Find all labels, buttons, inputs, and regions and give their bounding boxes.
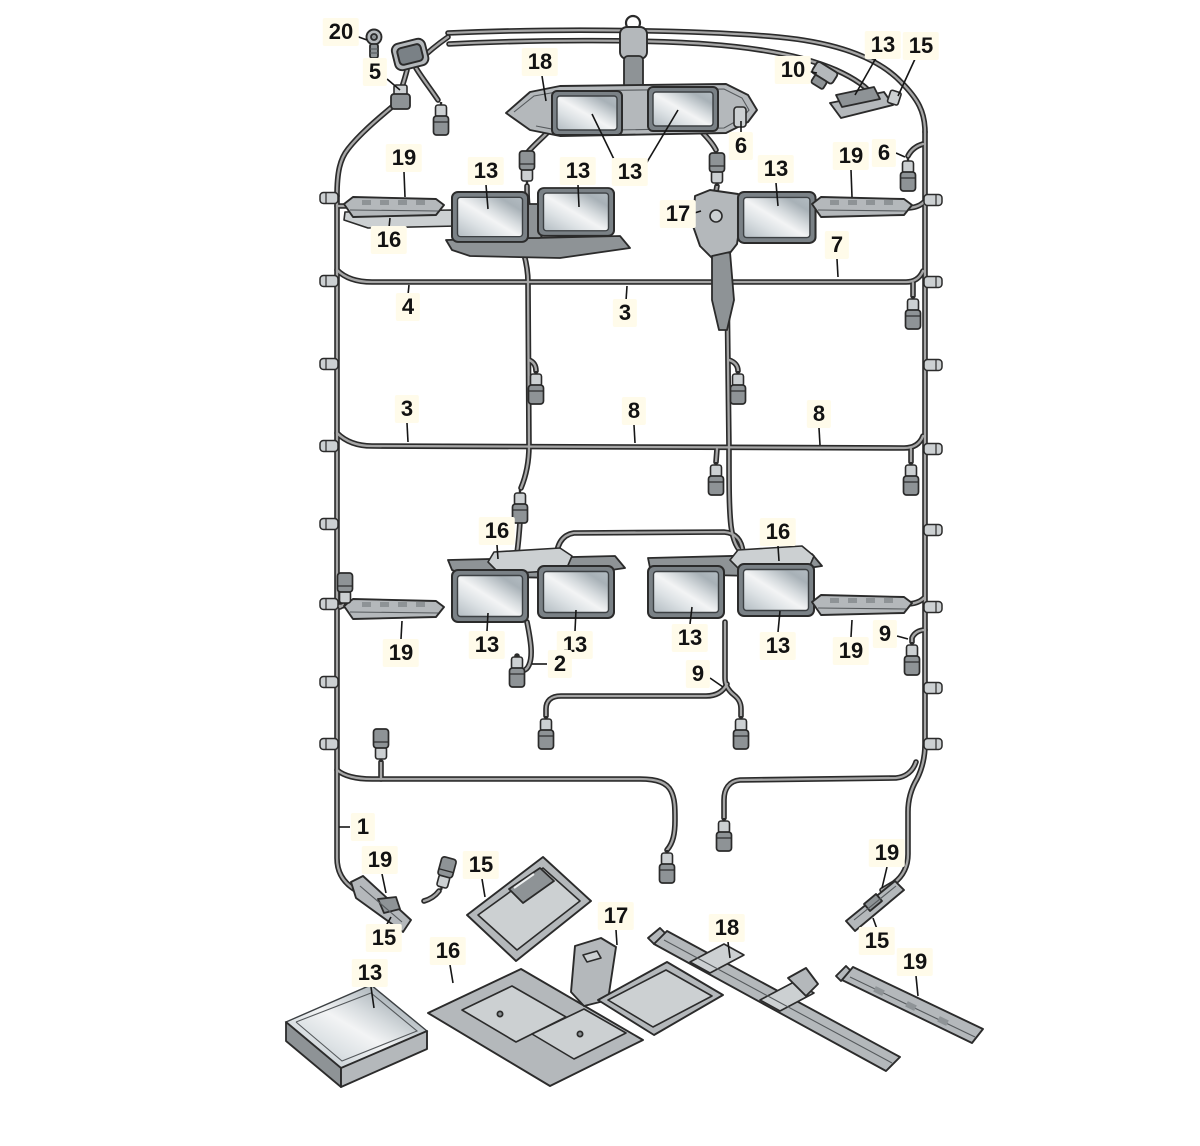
callout-16-22: 16 <box>479 517 515 545</box>
callout-13-28: 13 <box>672 624 708 652</box>
callout-13-29: 13 <box>760 632 796 660</box>
wire-cluster-drop-b <box>416 68 438 100</box>
callout-18-2: 18 <box>522 48 558 76</box>
wire-9-left-branch <box>546 684 727 716</box>
connector-6-right <box>901 158 916 191</box>
leader-line-13 <box>578 185 579 207</box>
callout-19-34: 19 <box>362 846 398 874</box>
callout-15-42: 15 <box>859 927 895 955</box>
callout-5-1: 5 <box>363 58 387 86</box>
leader-line-9 <box>897 636 908 639</box>
wire-run-d <box>724 762 916 818</box>
callout-13-9: 13 <box>560 157 596 185</box>
callout-13-4: 13 <box>865 31 901 59</box>
callout-16-15: 16 <box>371 226 407 254</box>
callout-19-7: 19 <box>386 144 422 172</box>
rail-19-upper-left <box>344 197 444 217</box>
leader-line-16 <box>450 965 453 983</box>
leader-line-9 <box>710 678 723 687</box>
callout-1-33: 1 <box>351 813 375 841</box>
part-19-rail <box>836 966 983 1043</box>
rail-19-lower-left <box>344 599 444 619</box>
callout-15-36: 15 <box>463 851 499 879</box>
leader-line-15 <box>482 879 485 897</box>
callout-19-24: 19 <box>383 639 419 667</box>
callout-13-8: 13 <box>468 157 504 185</box>
callout-19-41: 19 <box>869 839 905 867</box>
leader-line-19 <box>916 976 918 996</box>
callout-20-0: 20 <box>323 18 359 46</box>
leader-line-8 <box>634 425 635 443</box>
callout-15-35: 15 <box>366 924 402 952</box>
callout-8-21: 8 <box>807 400 831 428</box>
leader-line-19 <box>382 874 386 893</box>
callout-9-32: 9 <box>686 660 710 688</box>
callout-2-27: 2 <box>548 650 572 678</box>
callout-8-20: 8 <box>622 397 646 425</box>
diagram-canvas: 2051810131561913131317131961674338816161… <box>0 0 1200 1146</box>
callout-10-3: 10 <box>775 56 811 84</box>
module-13-lr-a <box>648 566 724 618</box>
leader-line-13 <box>575 610 576 631</box>
callout-17-11: 17 <box>660 200 696 228</box>
leader-line-16 <box>497 545 498 559</box>
callout-19-13: 19 <box>833 142 869 170</box>
callout-18-40: 18 <box>709 914 745 942</box>
module-13-ul-a <box>452 192 528 242</box>
callout-13-25: 13 <box>469 631 505 659</box>
connector-9-right <box>905 642 920 675</box>
leader-line-17 <box>616 930 617 945</box>
callout-6-6: 6 <box>729 132 753 160</box>
callout-7-16: 7 <box>825 231 849 259</box>
leader-line-19 <box>401 621 402 639</box>
leader-line-13 <box>487 613 488 631</box>
module-13-ll-a <box>452 570 528 622</box>
bolt-20 <box>367 30 382 59</box>
wire-run-a <box>337 270 923 282</box>
leader-line-16 <box>778 546 779 561</box>
assembly-upper-right <box>693 153 916 330</box>
rail-19-lower-right <box>812 595 912 615</box>
callout-13-12: 13 <box>758 155 794 183</box>
leader-line-3 <box>407 423 408 442</box>
wire-9-left-branch <box>546 684 727 716</box>
callout-4-17: 4 <box>396 293 420 321</box>
callout-19-43: 19 <box>897 948 933 976</box>
connector-10 <box>806 61 838 92</box>
callout-6-14: 6 <box>872 139 896 167</box>
callout-16-23: 16 <box>760 518 796 546</box>
module-13-lr-b <box>738 564 814 616</box>
leader-line-19 <box>851 620 852 637</box>
callout-3-18: 3 <box>613 299 637 327</box>
connector-wire-2 <box>510 654 525 687</box>
wire-run-c <box>337 770 675 850</box>
callout-15-5: 15 <box>903 32 939 60</box>
part-13-box <box>286 985 427 1087</box>
bracket-17 <box>693 190 742 258</box>
callout-19-30: 19 <box>833 637 869 665</box>
leader-line-7 <box>837 259 838 277</box>
connector-5-cluster <box>390 37 448 135</box>
leader-line-19 <box>851 170 852 197</box>
wire-run-d <box>724 762 916 818</box>
callout-9-31: 9 <box>873 620 897 648</box>
wire-runb-stub-mid <box>716 449 717 462</box>
harness-artwork <box>0 0 1200 1146</box>
rail-19-upper-right <box>812 197 912 217</box>
leader-line-6 <box>896 153 905 157</box>
wire-run-c <box>337 770 675 850</box>
leader-line-19 <box>404 172 405 197</box>
module-13-ul-b <box>538 188 614 236</box>
callout-17-39: 17 <box>598 902 634 930</box>
wire-left-edge <box>337 196 367 896</box>
wire-left-edge <box>337 196 367 896</box>
callout-16-37: 16 <box>430 937 466 965</box>
callout-3-19: 3 <box>395 395 419 423</box>
callout-13-38: 13 <box>352 959 388 987</box>
wire-topasm-left-drop <box>528 132 548 152</box>
callout-13-10: 13 <box>612 158 648 186</box>
clip-6-top <box>734 107 746 127</box>
leader-line-8 <box>819 428 820 445</box>
